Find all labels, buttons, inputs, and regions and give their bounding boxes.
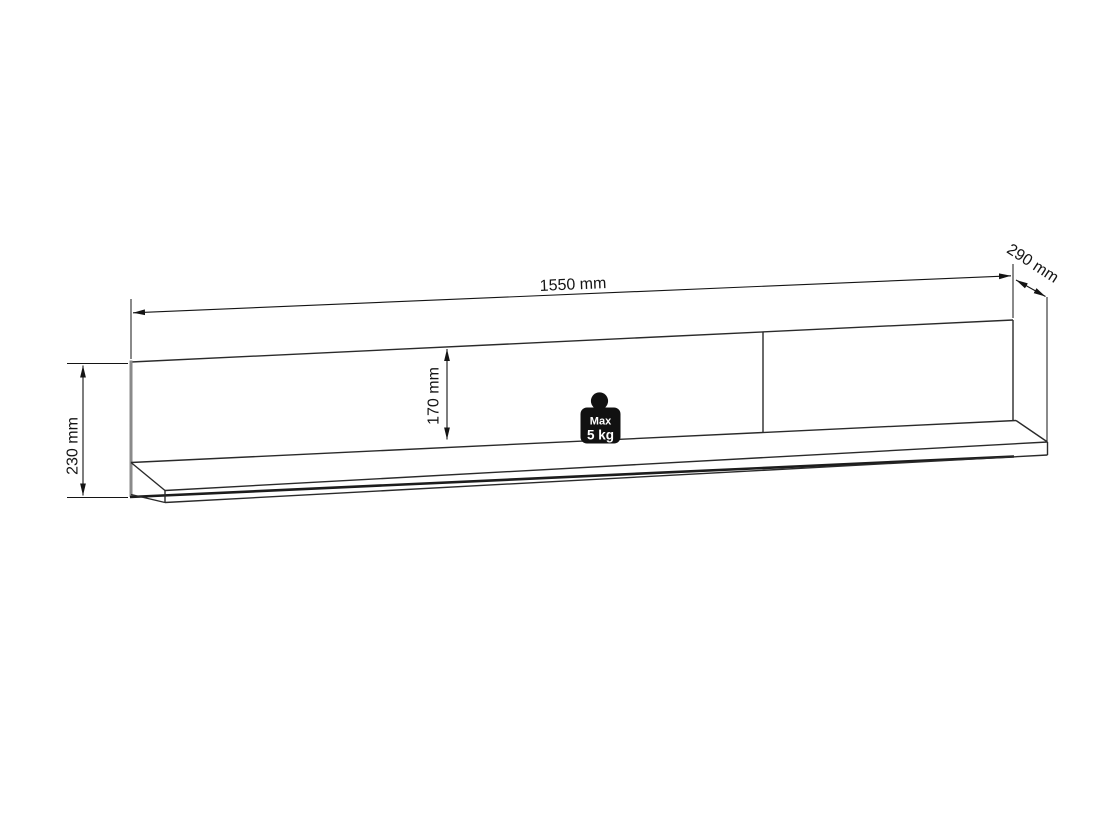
inner-height-dimension-label: 170 mm <box>426 367 443 425</box>
height-dimension: 230 mm <box>65 364 129 498</box>
shelf-bottom-front-edge <box>165 455 1048 503</box>
shelf-top-front-edge <box>165 442 1048 491</box>
shelf-left-end-edge <box>131 463 165 491</box>
height-dimension-label: 230 mm <box>65 417 82 475</box>
width-dimension: 1550 mm <box>131 264 1013 359</box>
shelf-right-end-edge <box>1016 421 1048 443</box>
width-dimension-label: 1550 mm <box>539 275 606 295</box>
back-panel-top-edge <box>131 320 1013 362</box>
depth-dimension-label: 290 mm <box>1004 241 1062 287</box>
weight-icon-handle <box>591 392 608 409</box>
depth-dimension-line <box>1016 280 1046 297</box>
max-load-badge: Max 5 kg <box>581 392 621 443</box>
max-load-label-line1: Max <box>590 416 612 428</box>
max-load-label-line2: 5 kg <box>587 428 614 443</box>
inner-height-dimension: 170 mm <box>426 349 448 440</box>
drawing-canvas: 1550 mm 290 mm 230 mm 170 mm Max 5 kg <box>0 0 1098 822</box>
back-panel-bottom-edge <box>130 457 1014 498</box>
depth-dimension: 290 mm <box>1004 241 1062 441</box>
shelf-dimension-drawing: 1550 mm 290 mm 230 mm 170 mm Max 5 kg <box>0 0 1098 822</box>
shelf-top-back-edge <box>131 421 1016 463</box>
